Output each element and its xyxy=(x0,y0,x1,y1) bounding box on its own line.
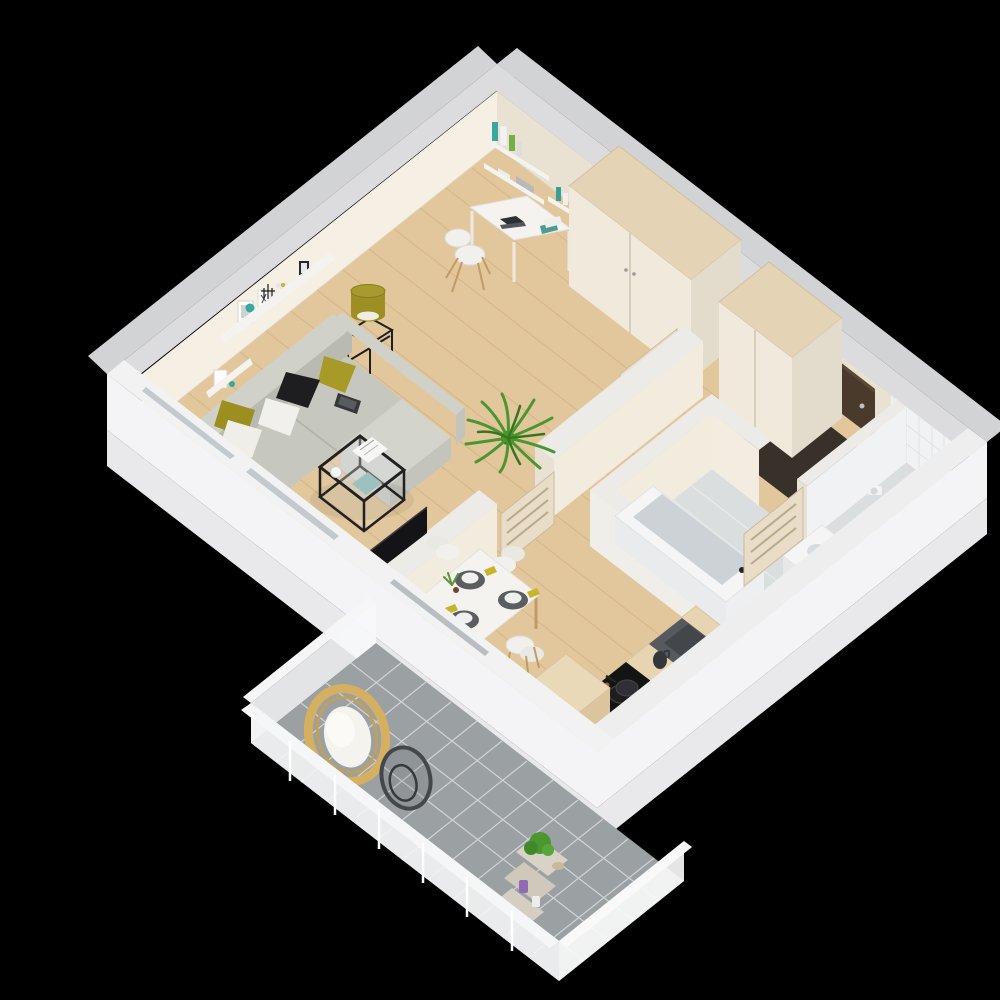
glass-cup xyxy=(331,467,342,478)
shell-decor xyxy=(552,862,564,870)
book-white xyxy=(500,126,507,146)
book-teal xyxy=(492,122,498,141)
wardrobe-handle xyxy=(624,268,628,272)
kettle-body xyxy=(653,651,667,669)
shelf-plant-3 xyxy=(542,844,554,856)
chair-seat xyxy=(455,245,485,265)
door-handle xyxy=(860,404,865,409)
chair-back xyxy=(520,646,544,662)
chair-back xyxy=(445,229,471,247)
tp-roll xyxy=(871,488,878,495)
small-vase xyxy=(229,381,235,387)
white-vase xyxy=(532,896,540,907)
floor-plan-render xyxy=(0,0,1000,1000)
shelf-plant-2 xyxy=(524,841,538,855)
purple-candle xyxy=(519,880,528,893)
toilet-paper-holder xyxy=(868,486,882,495)
pinecone xyxy=(453,587,459,593)
lamp-glow xyxy=(357,312,379,321)
plate xyxy=(462,573,479,584)
book-green xyxy=(509,135,515,151)
book-white-2 xyxy=(563,193,568,205)
floor-plan-stage xyxy=(0,0,1000,1000)
lamp-shade-top xyxy=(351,285,385,298)
book-grey xyxy=(517,142,522,156)
plate-2 xyxy=(505,593,522,604)
chair-seat xyxy=(436,544,460,560)
book-teal-2 xyxy=(556,187,561,201)
decor-lemon xyxy=(281,283,285,287)
wardrobe-handle-2 xyxy=(632,272,636,276)
